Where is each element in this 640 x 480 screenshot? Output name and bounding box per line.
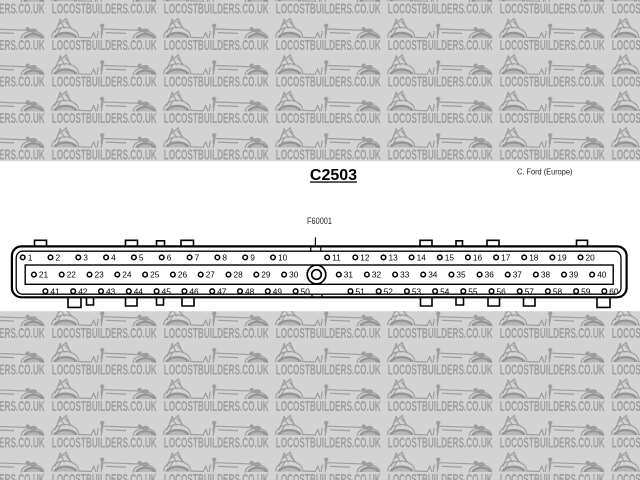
svg-text:16: 16 [473,253,483,263]
svg-text:39: 39 [569,270,579,280]
svg-text:24: 24 [122,270,132,280]
svg-text:48: 48 [245,286,255,296]
svg-text:42: 42 [78,286,88,296]
svg-text:33: 33 [400,270,410,280]
svg-text:59: 59 [581,286,591,296]
svg-text:36: 36 [485,270,495,280]
svg-text:4: 4 [111,253,116,263]
svg-text:29: 29 [261,270,271,280]
svg-text:15: 15 [445,253,455,263]
svg-text:55: 55 [468,286,478,296]
svg-text:38: 38 [541,270,551,280]
svg-text:5: 5 [139,253,144,263]
svg-text:56: 56 [497,286,507,296]
svg-text:32: 32 [372,270,382,280]
svg-text:34: 34 [428,270,438,280]
svg-text:12: 12 [360,253,370,263]
svg-text:17: 17 [501,253,511,263]
svg-text:57: 57 [525,286,535,296]
svg-text:47: 47 [217,286,227,296]
svg-text:52: 52 [384,286,394,296]
svg-text:51: 51 [356,286,366,296]
svg-text:31: 31 [344,270,354,280]
svg-text:53: 53 [412,286,422,296]
svg-text:8: 8 [222,253,227,263]
svg-text:13: 13 [389,253,399,263]
svg-text:44: 44 [134,286,144,296]
svg-text:49: 49 [273,286,283,296]
svg-text:58: 58 [553,286,563,296]
svg-text:21: 21 [39,270,49,280]
svg-text:43: 43 [106,286,116,296]
svg-text:45: 45 [162,286,172,296]
svg-text:23: 23 [95,270,105,280]
svg-text:11: 11 [332,253,341,263]
svg-text:60: 60 [609,286,619,296]
svg-text:28: 28 [234,270,244,280]
svg-text:2: 2 [56,253,61,263]
svg-text:50: 50 [301,286,311,296]
svg-text:35: 35 [456,270,466,280]
svg-text:1: 1 [28,253,33,263]
svg-text:27: 27 [206,270,216,280]
svg-text:9: 9 [250,253,255,263]
svg-text:19: 19 [557,253,567,263]
svg-text:25: 25 [150,270,160,280]
svg-text:46: 46 [189,286,199,296]
svg-text:10: 10 [278,253,288,263]
svg-text:54: 54 [440,286,450,296]
svg-text:18: 18 [529,253,539,263]
svg-text:37: 37 [513,270,523,280]
svg-text:26: 26 [178,270,188,280]
svg-text:7: 7 [195,253,200,263]
svg-text:41: 41 [50,286,60,296]
svg-text:40: 40 [597,270,607,280]
svg-text:C2503: C2503 [310,167,357,184]
svg-text:14: 14 [417,253,427,263]
svg-text:F60001: F60001 [307,216,332,226]
svg-text:20: 20 [586,253,596,263]
svg-text:C. Ford (Europe): C. Ford (Europe) [517,166,573,176]
svg-text:30: 30 [289,270,299,280]
svg-text:3: 3 [83,253,88,263]
svg-text:22: 22 [67,270,77,280]
svg-text:6: 6 [167,253,172,263]
